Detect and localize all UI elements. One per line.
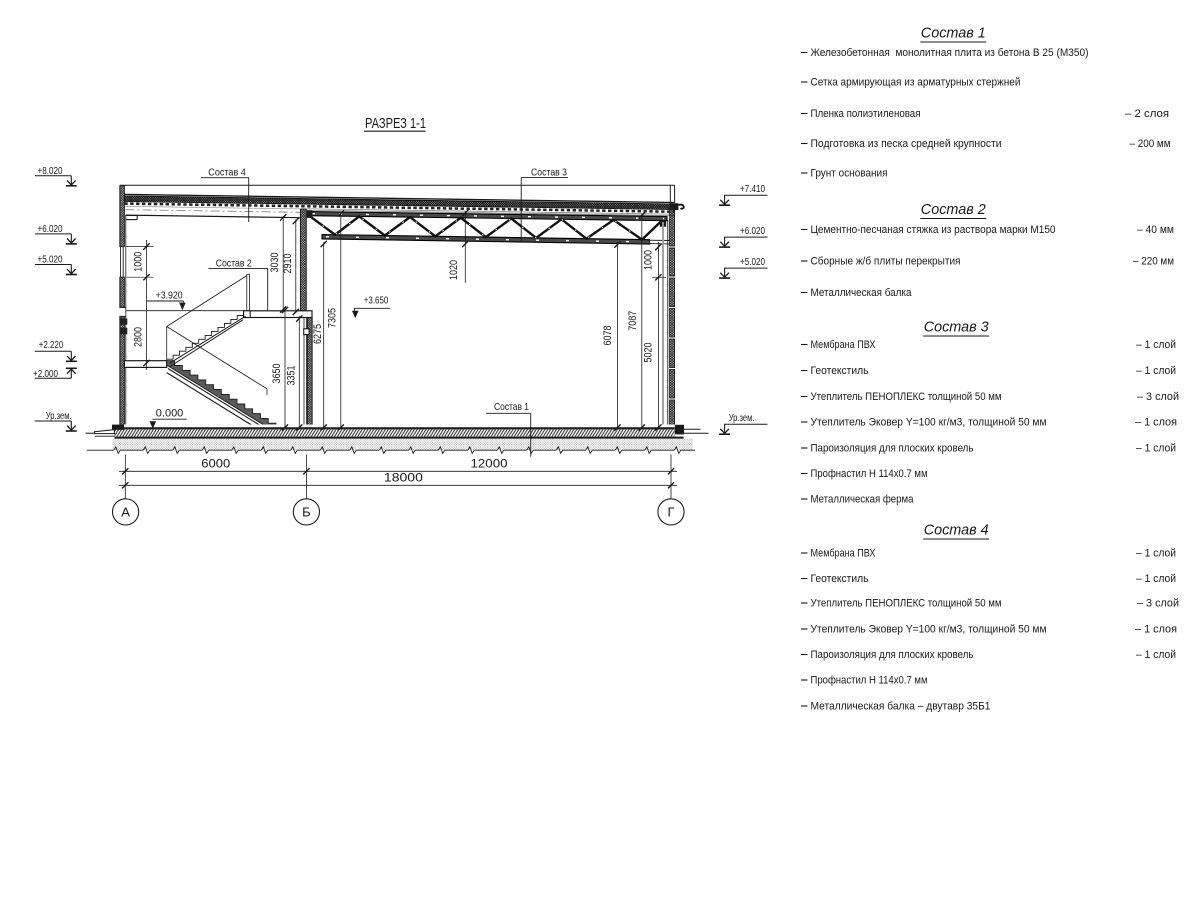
svg-text:Пленка полиэтиленовая: Пленка полиэтиленовая: [811, 108, 921, 120]
svg-text:1020: 1020: [448, 260, 460, 280]
svg-text:Состав 4: Состав 4: [208, 166, 246, 178]
svg-text:+3.920: +3.920: [156, 290, 183, 302]
svg-text:3030: 3030: [269, 253, 281, 273]
svg-text:Железобетонная монолитная пли: Железобетонная монолитная плита из бетон…: [811, 47, 1089, 59]
svg-text:Утеплитель ПЕНОПЛЕКС толщиной: Утеплитель ПЕНОПЛЕКС толщиной 50 мм: [811, 391, 1002, 403]
svg-text:+7.410: +7.410: [740, 184, 765, 195]
svg-text:Состав 1: Состав 1: [921, 25, 986, 42]
svg-text:Мембрана ПВХ: Мембрана ПВХ: [811, 548, 877, 560]
svg-text:Профнастил Н 114х0.7 мм: Профнастил Н 114х0.7 мм: [811, 468, 928, 480]
svg-text:Металлическая балка – двутавр: Металлическая балка – двутавр 35Б1: [811, 701, 991, 713]
svg-text:Ур.зем.: Ур.зем.: [46, 411, 72, 422]
svg-text:0.000: 0.000: [156, 408, 184, 420]
svg-text:Подготовка из песка средней кр: Подготовка из песка средней крупности: [811, 138, 1002, 150]
svg-text:+5.020: +5.020: [740, 257, 765, 268]
svg-text:Утеплитель ПЕНОПЛЕКС толщиной: Утеплитель ПЕНОПЛЕКС толщиной 50 мм: [811, 598, 1002, 610]
svg-text:А: А: [121, 505, 130, 520]
svg-text:Состав 2: Состав 2: [921, 201, 987, 218]
svg-text:6078: 6078: [602, 326, 614, 346]
svg-text:6000: 6000: [201, 456, 230, 470]
svg-text:18000: 18000: [384, 471, 423, 485]
svg-text:– 200 мм: – 200 мм: [1130, 138, 1171, 150]
svg-text:– 1 слоя: – 1 слоя: [1135, 624, 1177, 636]
svg-text:Состав 1: Состав 1: [494, 401, 529, 413]
svg-text:Утеплитель Эковер Y=100 кг/м3,: Утеплитель Эковер Y=100 кг/м3, толщиной …: [811, 417, 1047, 429]
svg-text:Геотекстиль: Геотекстиль: [811, 365, 869, 377]
svg-text:2910: 2910: [282, 254, 294, 274]
svg-text:6275: 6275: [312, 324, 324, 344]
svg-text:Цементно-песчаная стяжка из ра: Цементно-песчаная стяжка из раствора мар…: [811, 224, 1056, 236]
svg-text:Грунт основания: Грунт основания: [811, 168, 888, 180]
svg-text:Состав 2: Состав 2: [216, 257, 252, 269]
svg-text:РАЗРЕЗ 1-1: РАЗРЕЗ 1-1: [365, 115, 426, 132]
svg-text:– 1 слой: – 1 слой: [1136, 649, 1176, 661]
svg-text:– 1 слой: – 1 слой: [1136, 573, 1176, 585]
svg-text:– 3 слой: – 3 слой: [1137, 391, 1179, 403]
svg-text:Состав 4: Состав 4: [924, 522, 989, 539]
svg-text:– 220 мм: – 220 мм: [1133, 256, 1174, 268]
svg-text:– 1 слой: – 1 слой: [1136, 443, 1176, 455]
svg-text:– 40 мм: – 40 мм: [1137, 224, 1174, 236]
svg-text:Г: Г: [667, 505, 674, 520]
svg-text:Сетка армирующая из арматурных: Сетка армирующая из арматурных стержней: [811, 77, 1021, 89]
svg-text:Состав 3: Состав 3: [924, 319, 990, 336]
svg-text:Геотекстиль: Геотекстиль: [811, 573, 869, 585]
svg-text:Пароизоляция для плоских крове: Пароизоляция для плоских кровель: [811, 443, 974, 455]
svg-text:12000: 12000: [471, 456, 508, 470]
svg-text:– 2 слоя: – 2 слоя: [1125, 108, 1169, 120]
svg-text:Утеплитель Эковер Y=100 кг/м3,: Утеплитель Эковер Y=100 кг/м3, толщиной …: [811, 624, 1047, 636]
svg-text:– 1 слоя: – 1 слоя: [1135, 417, 1177, 429]
svg-text:Металлическая балка: Металлическая балка: [811, 287, 913, 299]
svg-text:Состав 3: Состав 3: [531, 166, 567, 178]
svg-text:Ур.зем.: Ур.зем.: [729, 413, 755, 424]
svg-text:2800: 2800: [133, 327, 145, 347]
svg-text:3351: 3351: [285, 366, 297, 386]
svg-text:5020: 5020: [642, 343, 654, 363]
svg-text:Металлическая ферма: Металлическая ферма: [811, 494, 915, 506]
svg-text:+3.650: +3.650: [364, 295, 389, 307]
svg-text:Б: Б: [302, 505, 311, 520]
svg-text:– 3 слой: – 3 слой: [1137, 598, 1179, 610]
svg-text:Мембрана ПВХ: Мембрана ПВХ: [811, 339, 877, 351]
svg-text:+6.020: +6.020: [740, 226, 765, 237]
svg-text:1000: 1000: [133, 252, 145, 272]
svg-text:Сборные ж/б плиты перекрытия: Сборные ж/б плиты перекрытия: [811, 256, 961, 268]
svg-text:– 1 слой: – 1 слой: [1136, 548, 1176, 560]
svg-text:– 1 слой: – 1 слой: [1136, 339, 1176, 351]
svg-text:Пароизоляция для плоских крове: Пароизоляция для плоских кровель: [811, 649, 974, 661]
svg-text:Профнастил Н 114х0.7 мм: Профнастил Н 114х0.7 мм: [811, 675, 928, 687]
svg-text:7087: 7087: [627, 311, 639, 331]
svg-text:+2.220: +2.220: [39, 340, 64, 351]
svg-text:1000: 1000: [642, 250, 654, 270]
svg-text:7305: 7305: [326, 308, 338, 328]
svg-text:3650: 3650: [271, 364, 283, 384]
svg-text:– 1 слой: – 1 слой: [1136, 365, 1176, 377]
